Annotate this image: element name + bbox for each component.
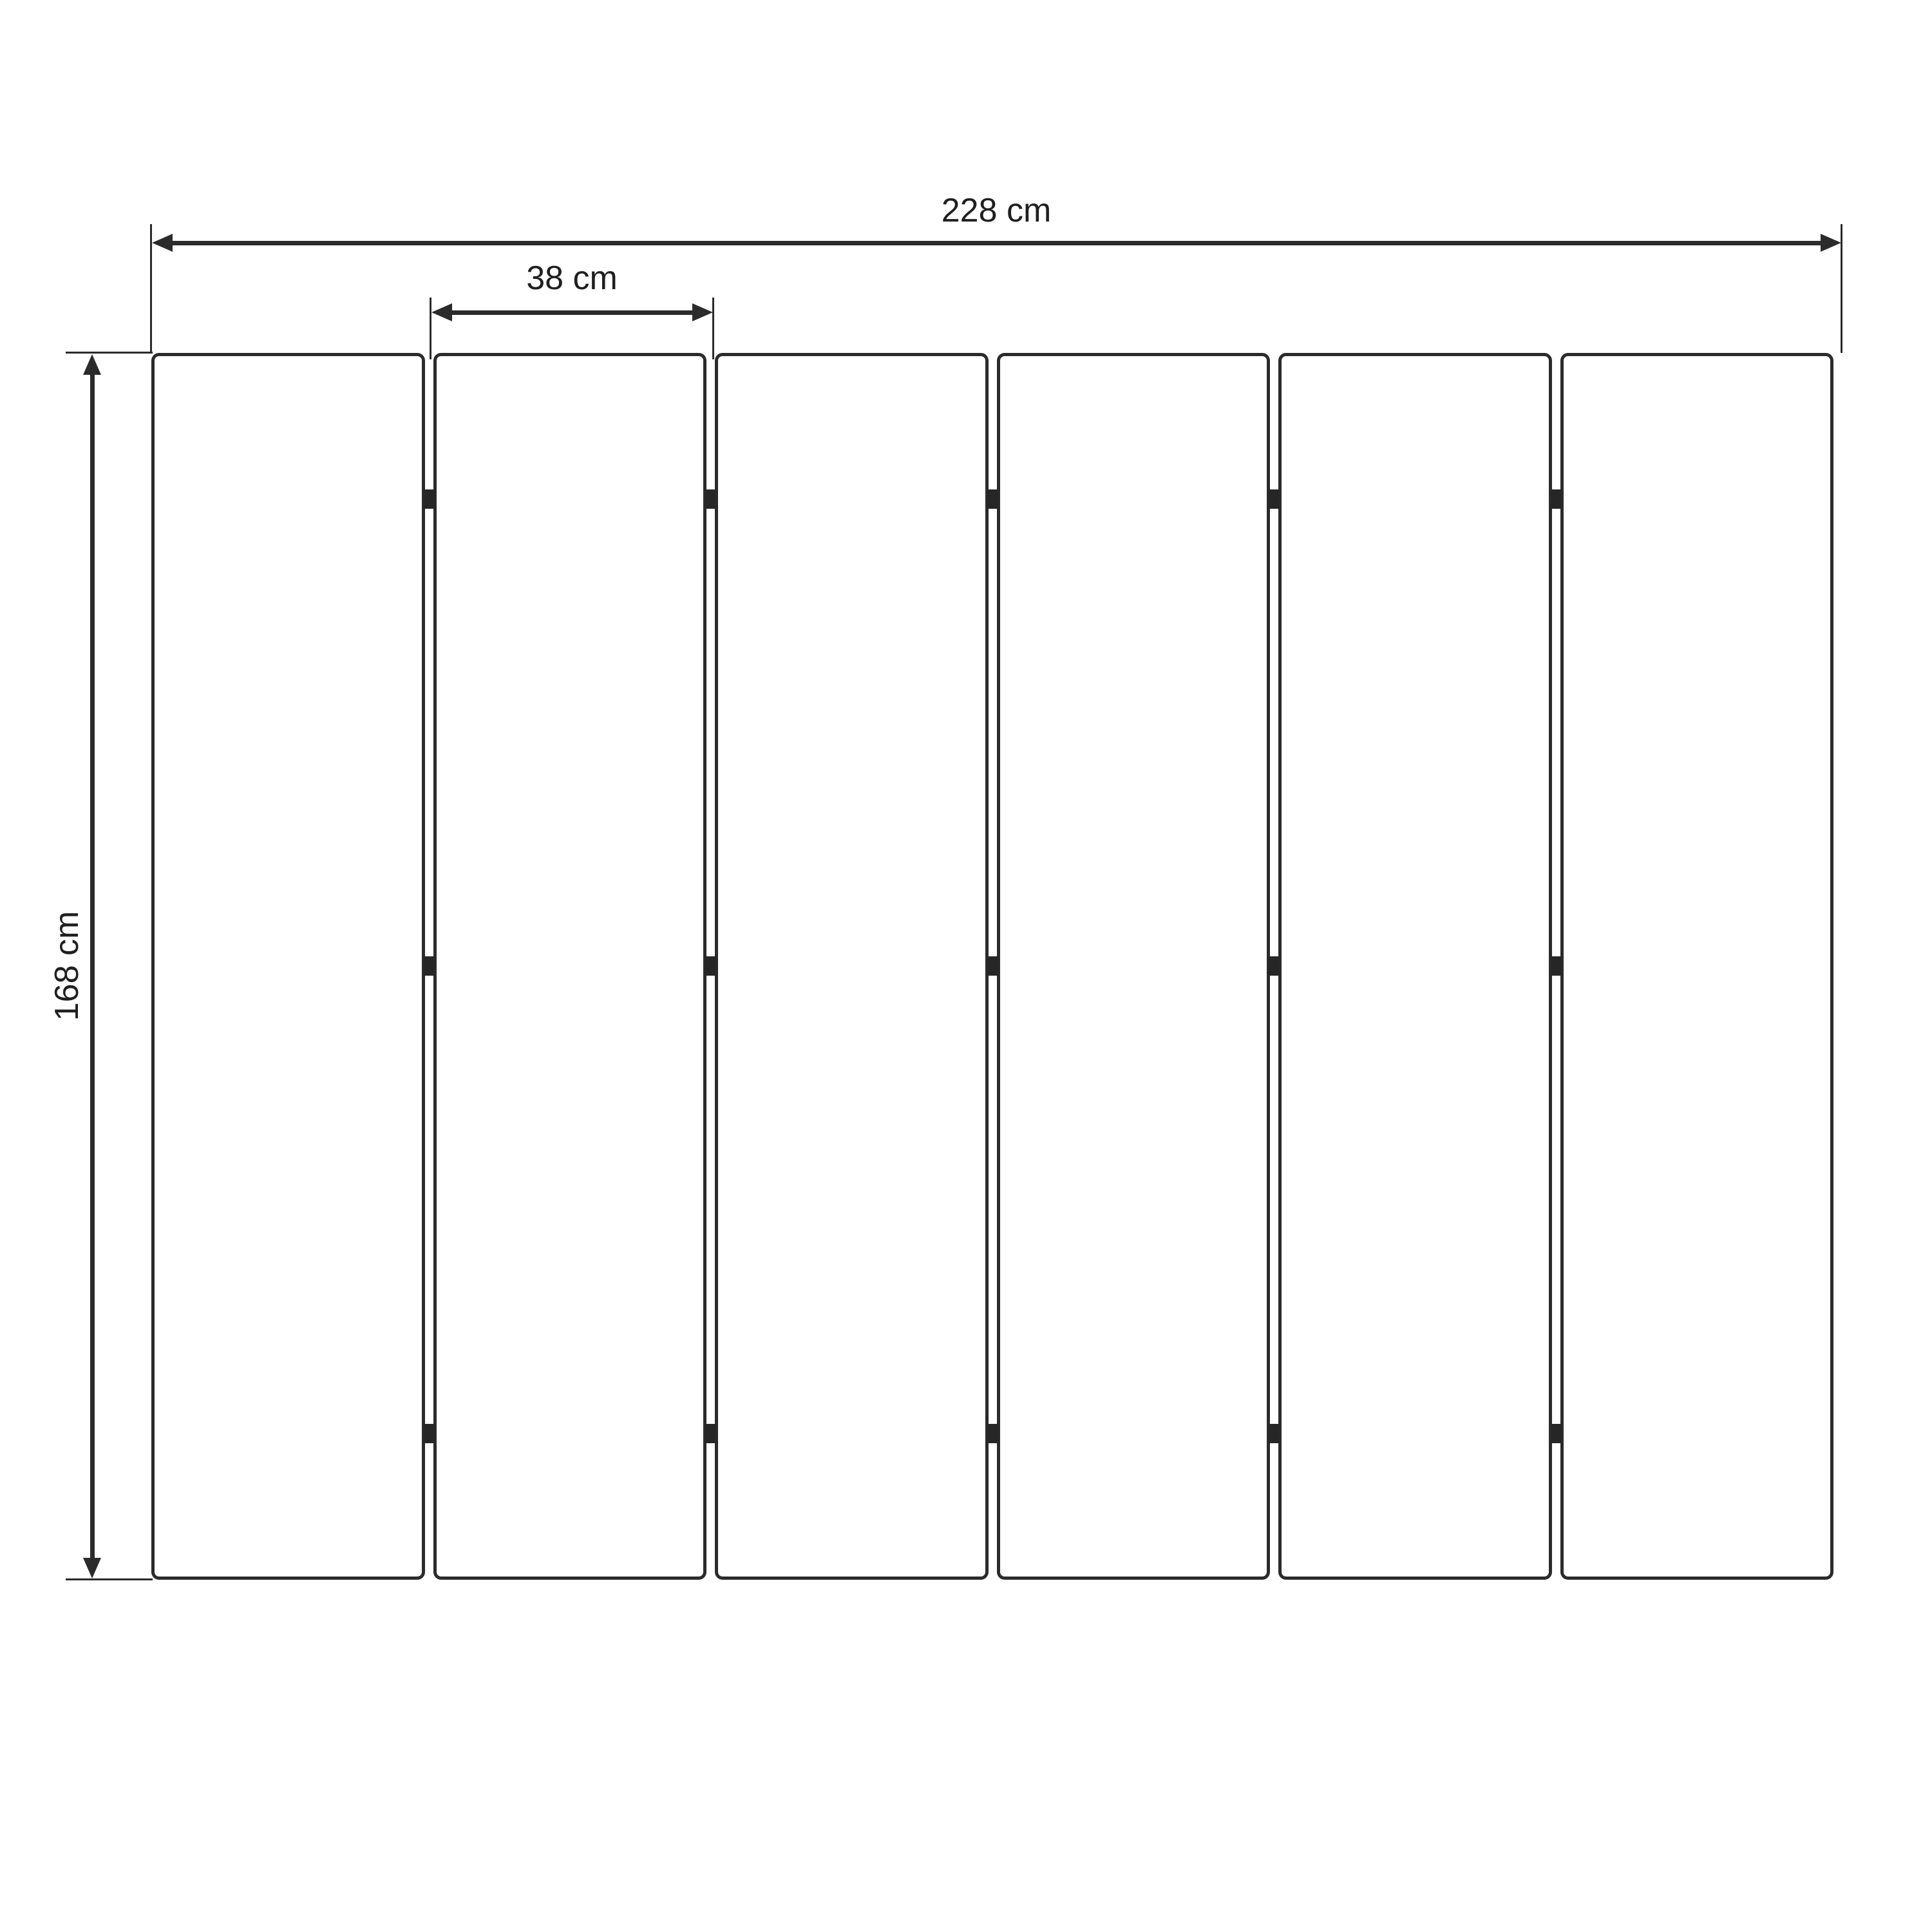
extension-line-top bbox=[66, 352, 153, 354]
hinge-mark bbox=[987, 489, 998, 509]
panel-4 bbox=[997, 353, 1271, 1580]
panel-1 bbox=[151, 353, 425, 1580]
hinge-mark bbox=[987, 956, 998, 976]
panel-5 bbox=[1278, 353, 1552, 1580]
height-label: 168 cm bbox=[50, 911, 84, 1021]
panel-width-label: 38 cm bbox=[475, 261, 668, 295]
panel-2 bbox=[433, 353, 707, 1580]
hinge-mark bbox=[705, 489, 716, 509]
hinge-mark bbox=[1269, 489, 1280, 509]
dimension-diagram: 228 cm 38 cm 168 cm bbox=[0, 0, 1932, 1932]
arrow-right-icon bbox=[692, 303, 713, 321]
hinge-mark bbox=[1269, 1424, 1280, 1443]
hinge-mark bbox=[1551, 956, 1562, 976]
hinge-mark bbox=[987, 1424, 998, 1443]
total-width-dimension-line bbox=[169, 241, 1763, 245]
panel-3 bbox=[715, 353, 989, 1580]
extension-line-bottom bbox=[66, 1578, 153, 1580]
panel-width-dimension-line bbox=[448, 310, 696, 315]
panel-6 bbox=[1560, 353, 1834, 1580]
arrow-down-icon bbox=[83, 1558, 101, 1578]
height-dimension-line bbox=[90, 370, 95, 1562]
hinge-mark bbox=[424, 956, 435, 976]
total-width-label: 228 cm bbox=[900, 194, 1093, 227]
arrow-left-icon bbox=[152, 234, 173, 252]
hinge-mark bbox=[705, 956, 716, 976]
hinge-mark bbox=[1269, 956, 1280, 976]
hinge-mark bbox=[424, 489, 435, 509]
hinge-mark bbox=[1551, 489, 1562, 509]
arrow-up-icon bbox=[83, 354, 101, 375]
arrow-right-icon bbox=[1821, 234, 1841, 252]
arrow-left-icon bbox=[431, 303, 452, 321]
total-width-dimension-line-2 bbox=[1763, 241, 1828, 245]
hinge-mark bbox=[1551, 1424, 1562, 1443]
hinge-mark bbox=[705, 1424, 716, 1443]
hinge-mark bbox=[424, 1424, 435, 1443]
